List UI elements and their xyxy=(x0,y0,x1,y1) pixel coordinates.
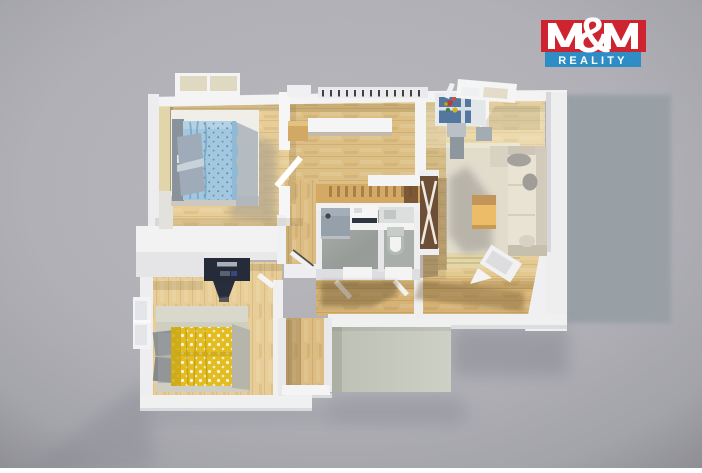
svg-text:REALITY: REALITY xyxy=(558,55,627,67)
